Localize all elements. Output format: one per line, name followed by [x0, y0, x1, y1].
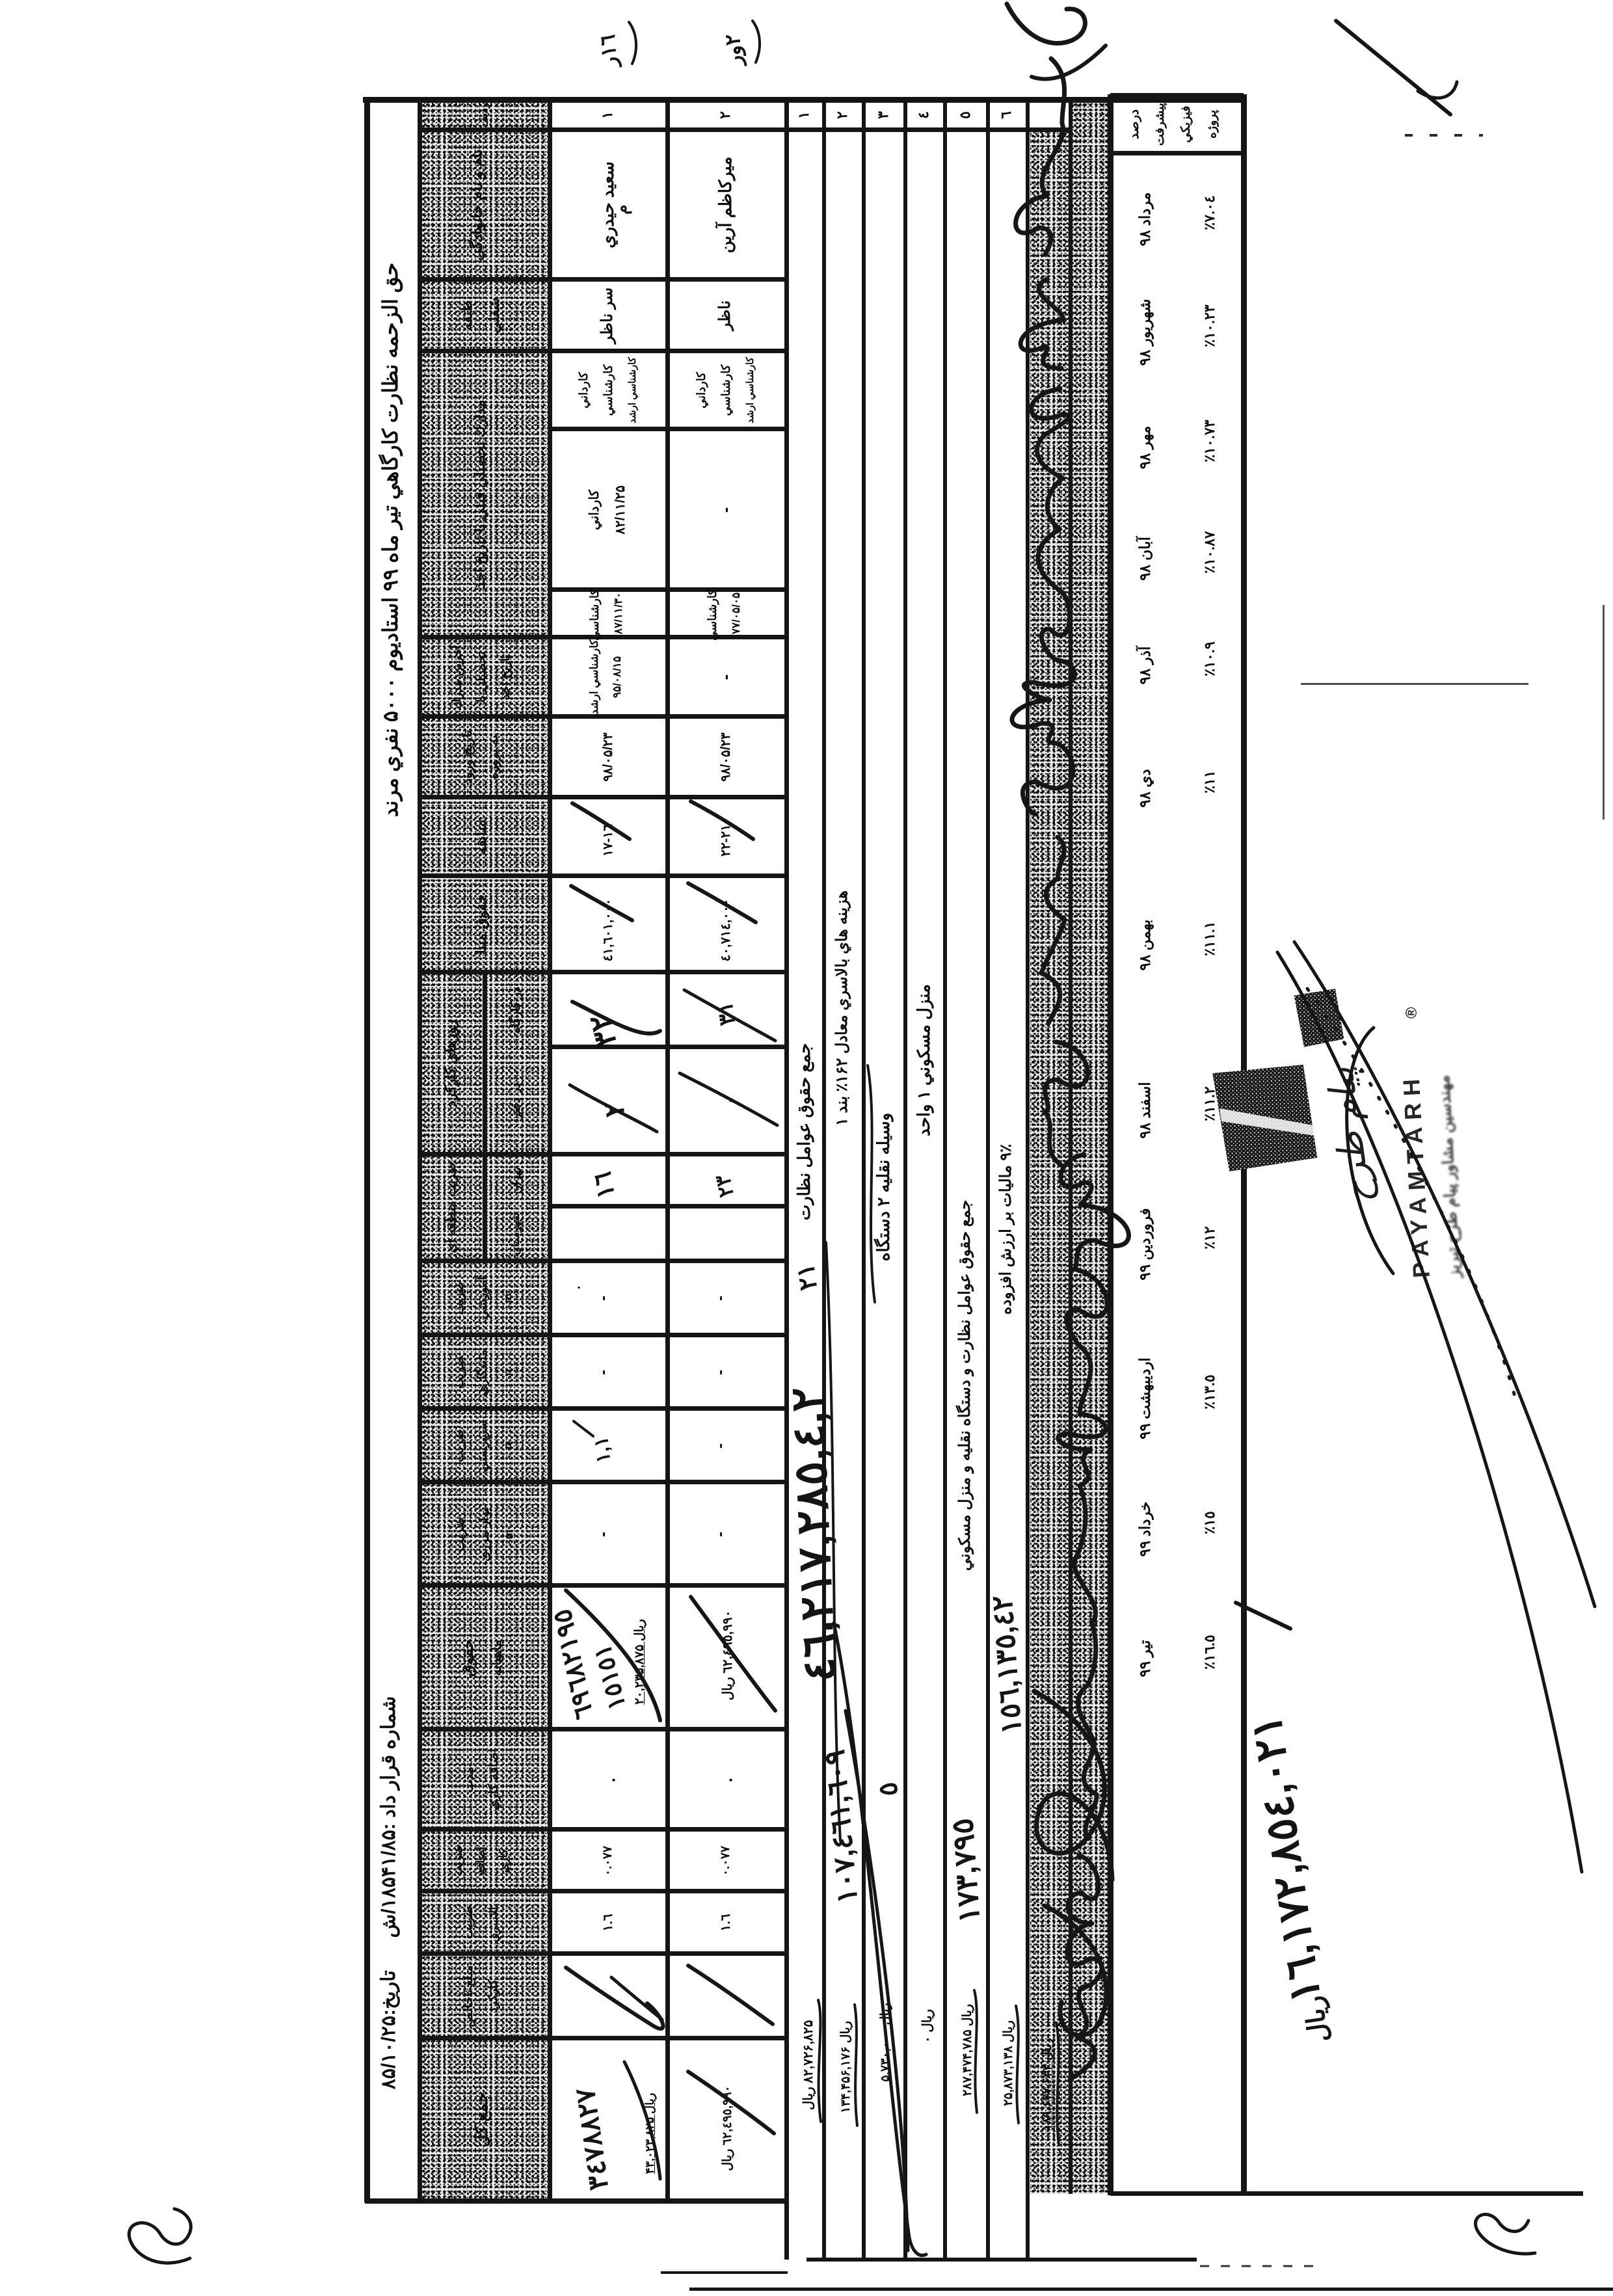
svg-text:٦٩٦٨٢١٩٥: ٦٩٦٨٢١٩٥ [548, 1607, 599, 1722]
svg-text:PAYAMTARH: PAYAMTARH [1397, 1071, 1435, 1279]
svg-text:١٧٣,٧٩٥: ١٧٣,٧٩٥ [945, 1817, 986, 1924]
svg-text:٢ور: ٢ور [721, 33, 747, 68]
svg-text:مهندسين مشاور پيام طرح تبريز: مهندسين مشاور پيام طرح تبريز [1435, 1075, 1464, 1279]
svg-text:ريال: ريال [1299, 1994, 1335, 2044]
svg-text:٢١: ٢١ [792, 1262, 823, 1292]
svg-text:م: م [611, 204, 632, 216]
svg-text:١٦,١٧٢,٨٥٤,٠٢١: ١٦,١٧٢,٨٥٤,٠٢١ [1242, 1712, 1329, 2005]
svg-text:٣٤٧٨٨٢٧: ٣٤٧٨٨٢٧ [569, 2086, 614, 2192]
svg-text:®: ® [1403, 1007, 1420, 1019]
svg-text:٥: ٥ [873, 1781, 903, 1798]
svg-text:١٥٦,١٣٥,٤٢: ١٥٦,١٣٥,٤٢ [986, 1594, 1028, 1735]
svg-text:٢٣: ٢٣ [710, 1173, 738, 1199]
svg-text:١٦ر: ١٦ر [596, 34, 623, 69]
svg-text:١,١: ١,١ [591, 1435, 615, 1464]
svg-text:١٦: ١٦ [589, 1169, 620, 1201]
